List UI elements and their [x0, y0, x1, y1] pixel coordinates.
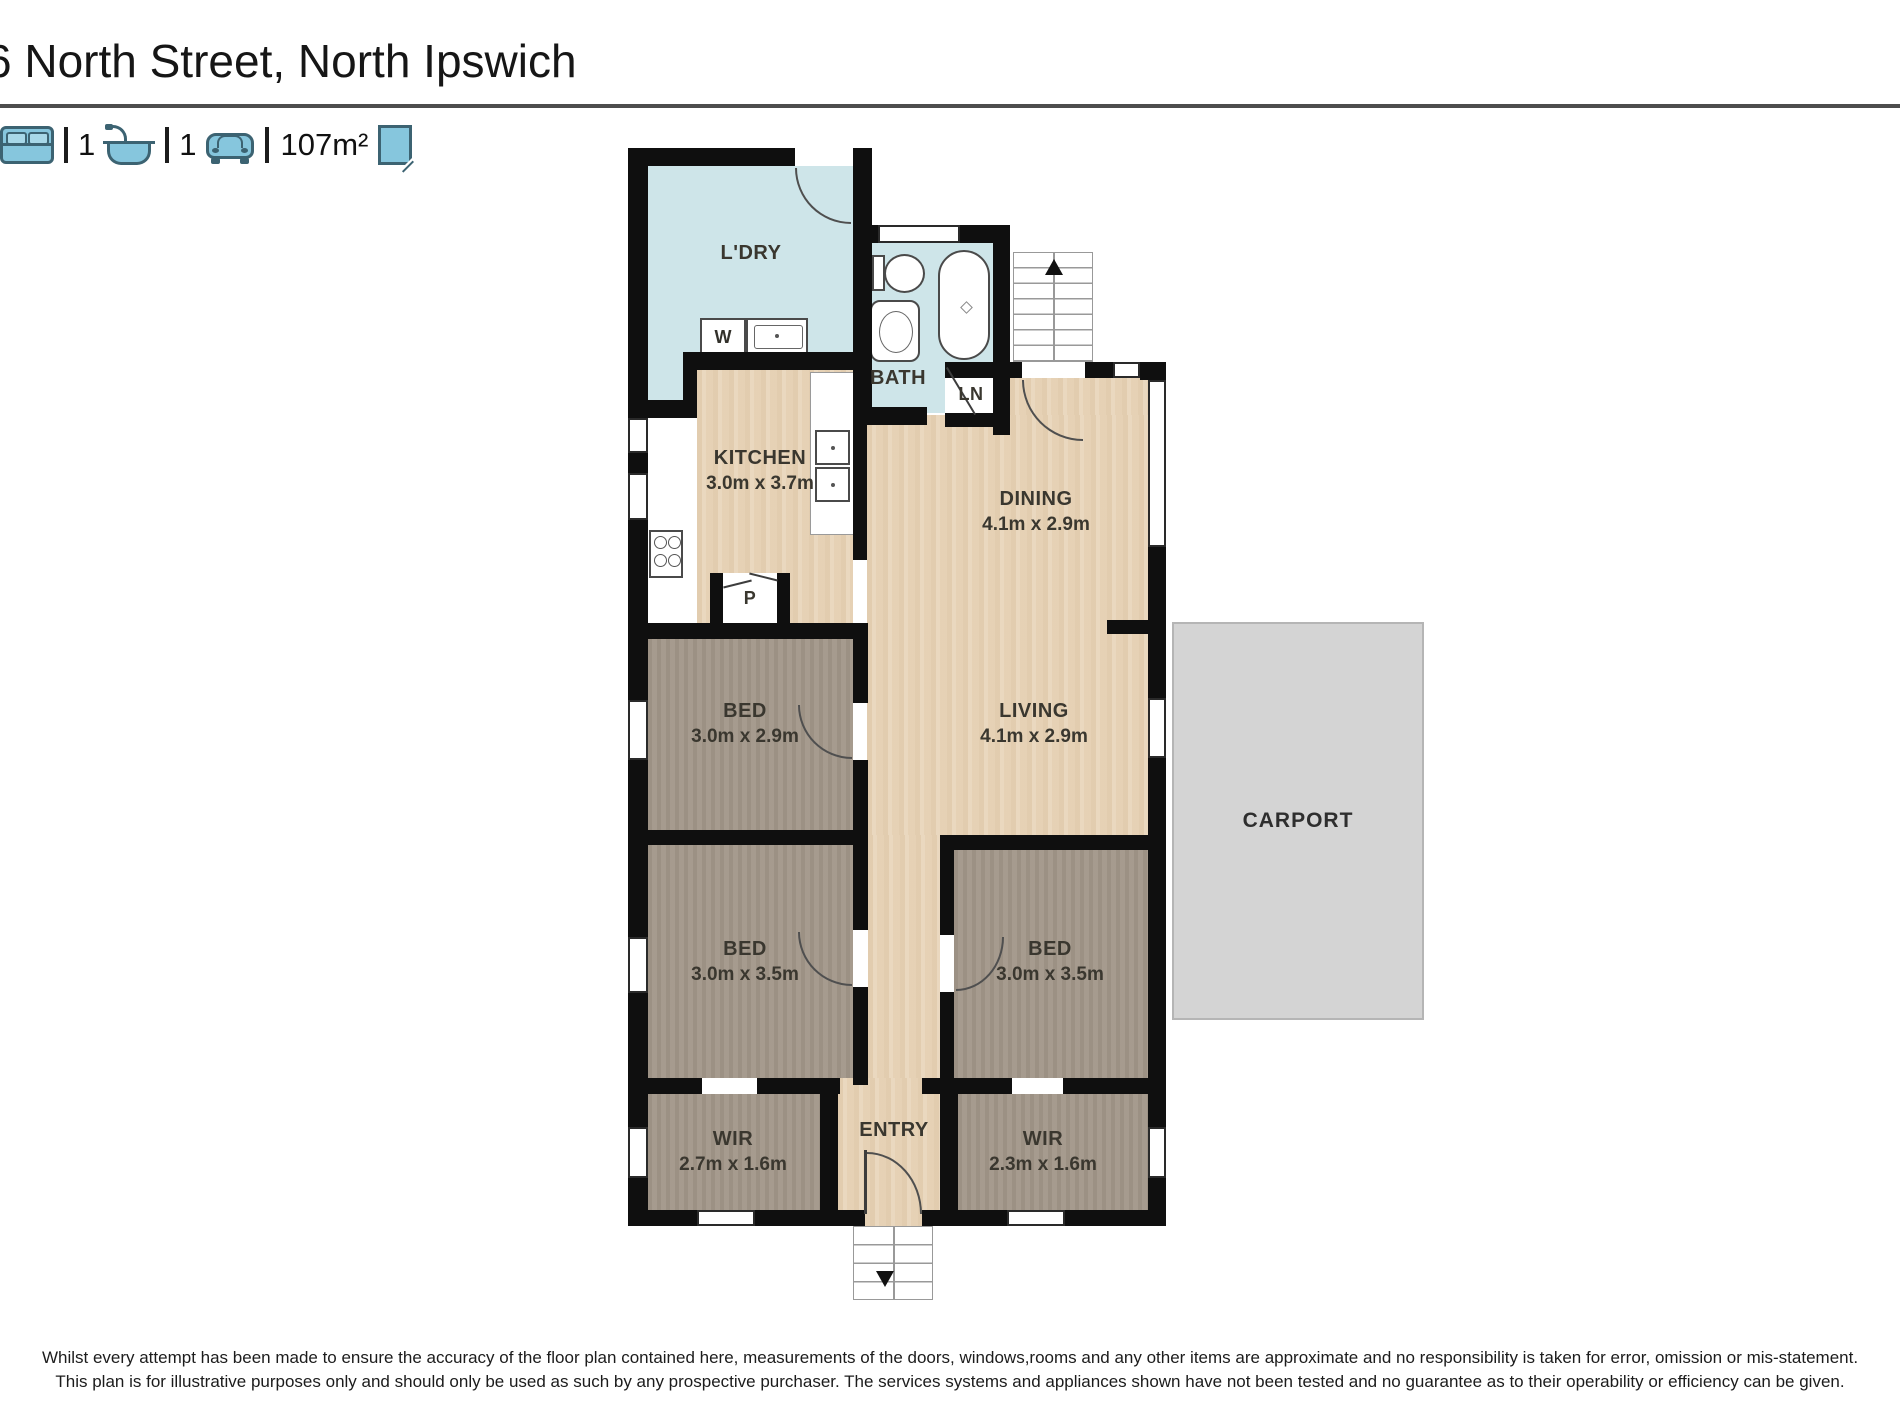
floor-area-icon: [378, 125, 412, 165]
entry-steps: [853, 1226, 933, 1300]
stat-separator: [64, 127, 68, 163]
disclaimer: Whilst every attempt has been made to en…: [0, 1346, 1900, 1394]
wall: [628, 760, 648, 937]
wall: [628, 148, 795, 166]
wall: [940, 850, 954, 935]
wall: [628, 453, 648, 473]
wall: [777, 573, 790, 623]
wall: [1107, 620, 1148, 634]
car-icon: [205, 126, 255, 164]
wall: [853, 639, 868, 703]
wall: [1085, 362, 1113, 378]
stairs-up-arrow: [1045, 259, 1063, 275]
room-label-entry: ENTRY: [859, 1119, 929, 1142]
disclaimer-line-2: This plan is for illustrative purposes o…: [0, 1370, 1900, 1394]
window: [878, 225, 960, 243]
wall: [945, 362, 1022, 378]
window: [628, 700, 648, 760]
rear-stairs: [1013, 252, 1093, 362]
wall: [628, 623, 868, 639]
cars-count: 1: [179, 127, 196, 163]
stove-icon: [649, 530, 683, 578]
stat-separator: [265, 127, 269, 163]
room-label-wir2: WIR 2.3m x 1.6m: [989, 1128, 1097, 1176]
window: [628, 473, 648, 520]
wall: [1148, 758, 1166, 1127]
window: [628, 418, 648, 453]
toilet-icon: [884, 254, 925, 293]
wall: [993, 225, 1010, 435]
wall: [853, 225, 878, 243]
wall: [683, 352, 872, 370]
room-label-linen: LN: [959, 384, 984, 405]
window: [628, 1127, 648, 1178]
wall: [922, 1078, 1012, 1094]
window: [628, 937, 648, 993]
kitchen-sink: [815, 467, 850, 502]
wall: [628, 830, 853, 845]
kitchen-sink: [815, 430, 850, 465]
carport-area: CARPORT: [1172, 622, 1424, 1020]
wall: [1140, 362, 1166, 380]
wall: [853, 987, 868, 1085]
wall: [1063, 1078, 1166, 1094]
window: [1148, 698, 1166, 758]
wall: [940, 835, 1166, 850]
wall: [853, 760, 868, 930]
floor-area: 107m²: [281, 127, 369, 163]
bath-icon: [103, 124, 155, 166]
room-label-bed3: BED 3.0m x 3.5m: [996, 938, 1104, 986]
wall: [628, 1178, 648, 1226]
carport-label: CARPORT: [1243, 809, 1354, 833]
window: [1148, 380, 1166, 547]
wall: [628, 520, 648, 700]
property-stats: 1 1 107m²: [0, 122, 412, 168]
wall: [755, 1210, 865, 1226]
window: [1148, 1127, 1166, 1178]
header-divider: [0, 104, 1900, 108]
floorplan-page: { "header": { "title": "6 North Street, …: [0, 0, 1900, 1425]
room-label-pantry: P: [744, 588, 757, 609]
wall: [940, 992, 954, 1078]
room-label-bath: BATH: [870, 367, 926, 390]
dining-living-floor: [867, 415, 1148, 835]
wall: [940, 1094, 958, 1210]
disclaimer-line-1: Whilst every attempt has been made to en…: [0, 1346, 1900, 1370]
laundry-floor: [648, 352, 683, 400]
room-label-dining: DINING 4.1m x 2.9m: [982, 488, 1090, 536]
room-label-bed2: BED 3.0m x 3.5m: [691, 938, 799, 986]
basin-icon: [870, 300, 920, 362]
room-label-bed1: BED 3.0m x 2.9m: [691, 700, 799, 748]
window: [1113, 362, 1140, 378]
window: [697, 1210, 755, 1226]
wall: [853, 370, 867, 560]
wall: [628, 993, 648, 1127]
room-label-living: LIVING 4.1m x 2.9m: [980, 700, 1088, 748]
room-label-kitchen: KITCHEN 3.0m x 3.7m: [706, 447, 814, 495]
wall: [1065, 1210, 1166, 1226]
laundry-trough: [746, 318, 808, 355]
wall: [628, 148, 648, 418]
wall: [820, 1094, 838, 1210]
steps-down-arrow: [876, 1271, 894, 1287]
bed-icon: [0, 126, 54, 164]
wall: [922, 1210, 1007, 1226]
wall: [1148, 547, 1166, 698]
bathtub-icon: [938, 250, 990, 360]
window: [1007, 1210, 1065, 1226]
page-title: 6 North Street, North Ipswich: [0, 34, 577, 88]
hallway-floor: [868, 835, 940, 1078]
stat-separator: [165, 127, 169, 163]
wall: [757, 1078, 840, 1094]
room-label-wir1: WIR 2.7m x 1.6m: [679, 1128, 787, 1176]
room-label-laundry: L'DRY: [721, 242, 782, 265]
washer-label: W: [715, 327, 732, 348]
baths-count: 1: [78, 127, 95, 163]
wall: [710, 573, 723, 623]
washing-machine: W: [700, 318, 746, 356]
wall: [945, 413, 993, 427]
